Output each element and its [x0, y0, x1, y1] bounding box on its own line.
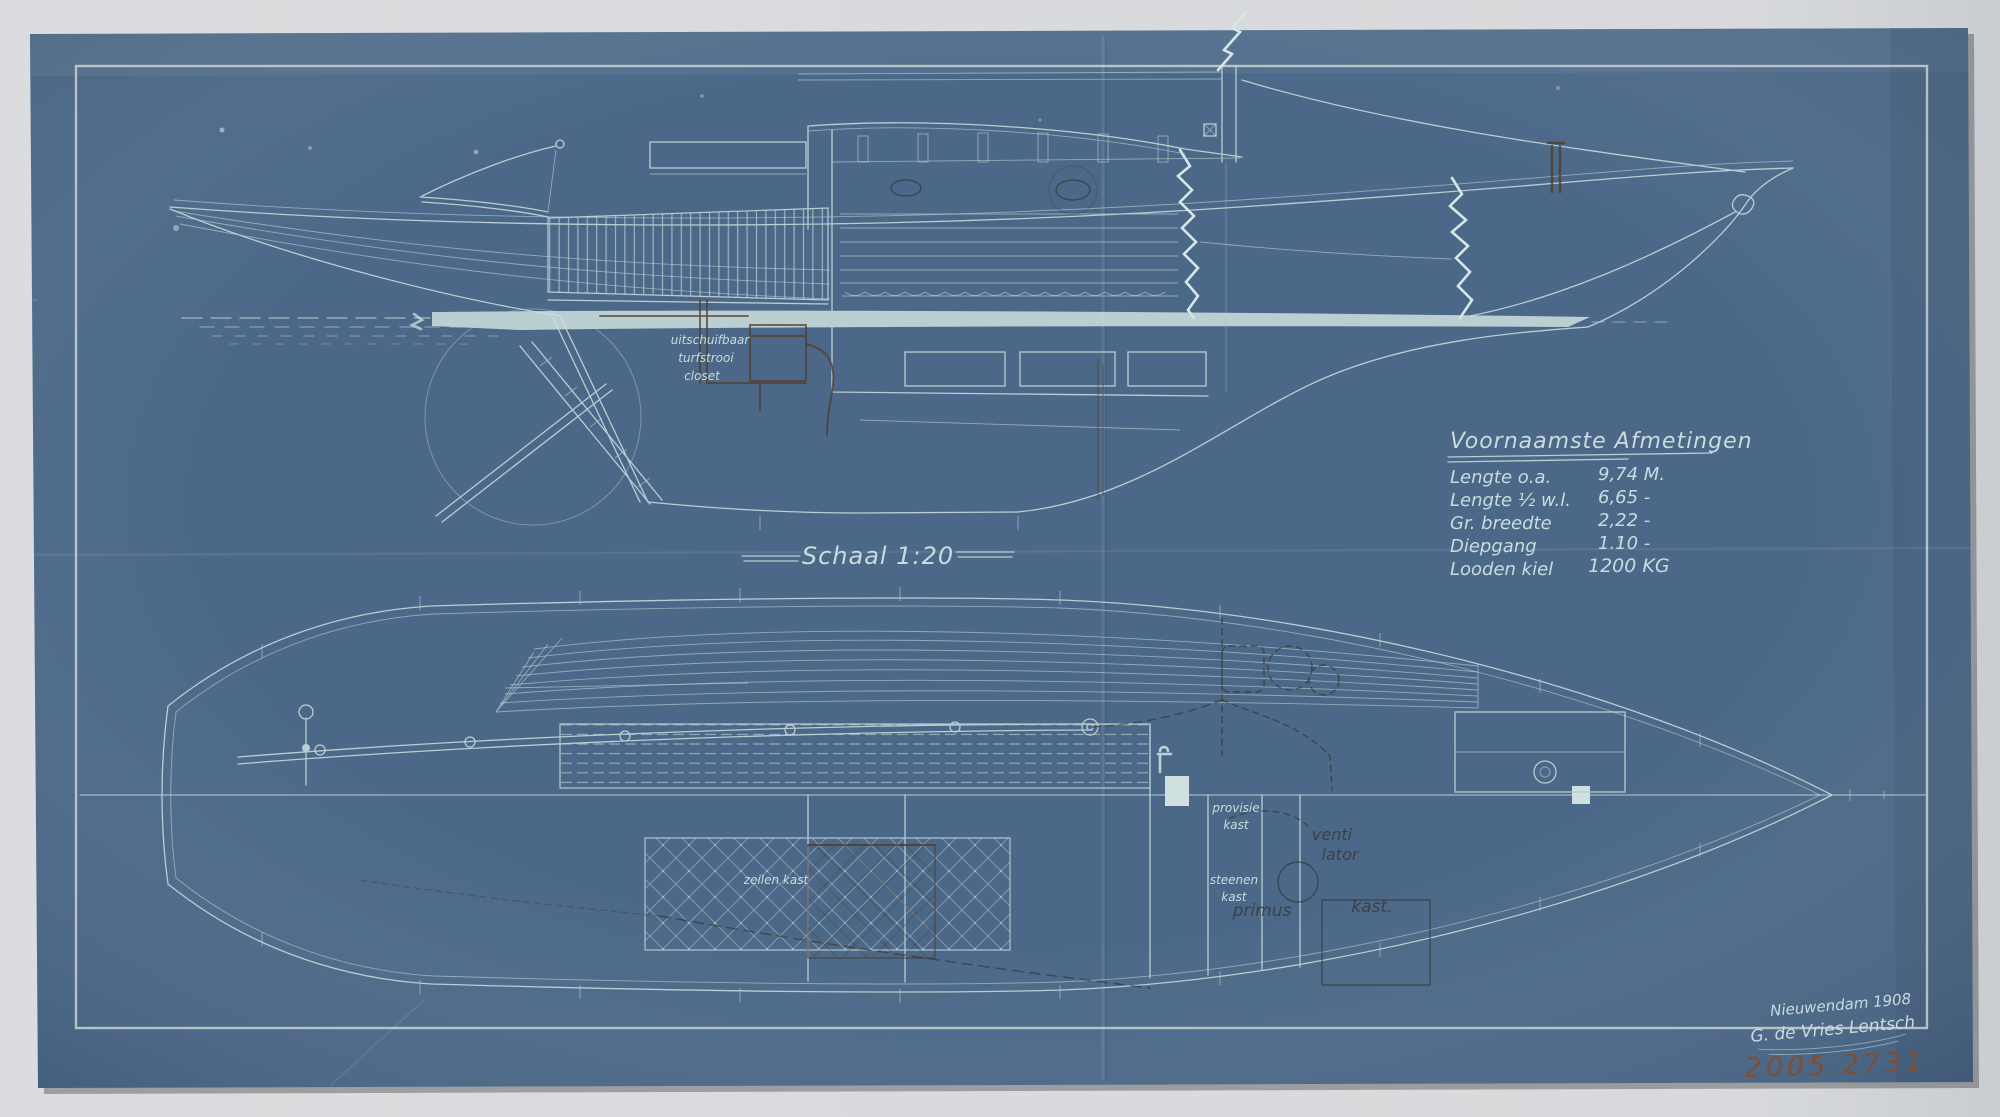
- scale-text: Schaal 1:20: [802, 542, 954, 570]
- pencil-lattice-overlay: [808, 845, 935, 958]
- primus-label: primus: [1232, 901, 1292, 921]
- dim-row-label-4: Looden kiel: [1450, 559, 1553, 580]
- ventilator-label-line1: venti: [1312, 825, 1353, 844]
- sail-locker-label: zeilen kast: [743, 873, 810, 887]
- closet-annotation-line2: turfstrooi: [678, 351, 734, 365]
- dim-row-value-1: 6,65 -: [1598, 487, 1650, 508]
- dim-row-value-2: 2,22 -: [1598, 510, 1650, 531]
- mast-step-block: [1165, 776, 1189, 806]
- accession-number: 2005.2731: [1744, 1047, 1927, 1084]
- bow-bitt: [1572, 786, 1590, 804]
- dim-row-label-0: Lengte o.a.: [1450, 467, 1551, 488]
- dim-row-label-1: Lengte ½ w.l.: [1450, 490, 1571, 511]
- ventilator-label-line2: lator: [1322, 845, 1360, 864]
- dim-row-label-2: Gr. breedte: [1450, 513, 1552, 534]
- stone-cupboard-label-line1: steenen: [1210, 873, 1258, 887]
- dim-row-value-0: 9,74 M.: [1598, 464, 1665, 485]
- dim-row-value-4: 1200 KG: [1588, 555, 1670, 577]
- dim-row-label-3: Diepgang: [1450, 536, 1537, 557]
- dimensions-table-title: Voornaamste Afmetingen: [1450, 429, 1753, 454]
- closet-annotation-line3: closet: [684, 369, 721, 383]
- photographed-blueprint-sheet: uitschuifbaar turfstrooi closet Schaal 1…: [0, 0, 2000, 1117]
- dim-row-value-3: 1.10 -: [1598, 533, 1650, 554]
- closet-annotation-line1: uitschuifbaar: [671, 333, 751, 347]
- provisions-label-line1: provisie: [1211, 801, 1259, 815]
- provisions-label-line2: kast: [1223, 818, 1250, 832]
